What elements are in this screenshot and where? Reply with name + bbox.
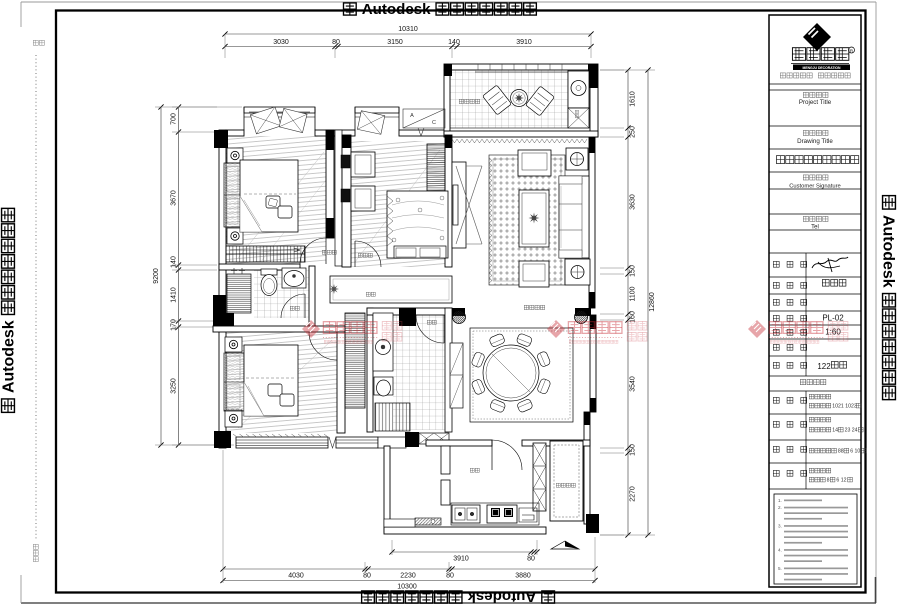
svg-text:3630: 3630 bbox=[630, 194, 637, 210]
svg-text:80: 80 bbox=[527, 556, 535, 563]
svg-text:6 12: 6 12 bbox=[836, 478, 846, 484]
svg-text:140: 140 bbox=[448, 39, 460, 46]
svg-text:1.: 1. bbox=[778, 498, 782, 503]
svg-text:9200: 9200 bbox=[153, 268, 160, 284]
svg-text:1610: 1610 bbox=[630, 91, 637, 107]
svg-text:Autodesk: Autodesk bbox=[467, 588, 536, 605]
svg-text:3540: 3540 bbox=[630, 376, 637, 392]
svg-text:8: 8 bbox=[827, 478, 830, 484]
svg-text:3880: 3880 bbox=[515, 573, 531, 580]
svg-text:3910: 3910 bbox=[516, 39, 532, 46]
svg-text:3150: 3150 bbox=[387, 39, 403, 46]
svg-text:2230: 2230 bbox=[400, 573, 416, 580]
svg-text:3030: 3030 bbox=[273, 39, 289, 46]
svg-text:23 24: 23 24 bbox=[845, 428, 858, 434]
svg-text:C: C bbox=[432, 120, 436, 126]
svg-text:Autodesk: Autodesk bbox=[362, 1, 431, 18]
svg-text:Tel: Tel bbox=[811, 225, 819, 231]
svg-text:4.: 4. bbox=[778, 548, 782, 553]
svg-text:Autodesk: Autodesk bbox=[880, 215, 897, 288]
svg-text:80: 80 bbox=[332, 39, 340, 46]
svg-text:1021 1023: 1021 1023 bbox=[832, 404, 857, 410]
svg-text:4030: 4030 bbox=[288, 573, 304, 580]
svg-text:3.: 3. bbox=[778, 524, 782, 529]
svg-text:88: 88 bbox=[838, 449, 844, 455]
svg-text:140: 140 bbox=[171, 256, 178, 268]
svg-text:Project Title: Project Title bbox=[799, 99, 832, 106]
svg-text:1100: 1100 bbox=[630, 286, 637, 301]
svg-text:2.: 2. bbox=[778, 505, 782, 510]
svg-text:700: 700 bbox=[171, 113, 178, 125]
svg-text:80: 80 bbox=[446, 573, 454, 580]
svg-text:5.: 5. bbox=[778, 566, 782, 571]
svg-text:122: 122 bbox=[817, 362, 831, 371]
svg-text:Drawing Title: Drawing Title bbox=[797, 138, 833, 145]
svg-text:Autodesk: Autodesk bbox=[1, 320, 18, 393]
svg-text:3670: 3670 bbox=[171, 190, 178, 206]
svg-text:12860: 12860 bbox=[649, 292, 656, 312]
svg-text:A: A bbox=[410, 113, 414, 119]
svg-text:14: 14 bbox=[832, 428, 838, 434]
svg-text:250: 250 bbox=[630, 126, 637, 138]
svg-text:Customer Signature: Customer Signature bbox=[789, 184, 841, 190]
svg-text:10300: 10300 bbox=[397, 584, 417, 591]
svg-text:3910: 3910 bbox=[453, 556, 469, 563]
svg-text:150: 150 bbox=[630, 444, 637, 456]
svg-text:150: 150 bbox=[630, 265, 637, 277]
svg-text:1410: 1410 bbox=[171, 287, 178, 303]
svg-text:MENGJU DECORATION: MENGJU DECORATION bbox=[803, 66, 842, 70]
svg-text:3250: 3250 bbox=[171, 378, 178, 394]
svg-text:2270: 2270 bbox=[630, 486, 637, 502]
svg-text:6 10: 6 10 bbox=[850, 449, 860, 455]
svg-text:10310: 10310 bbox=[398, 26, 418, 33]
svg-text:80: 80 bbox=[363, 573, 371, 580]
